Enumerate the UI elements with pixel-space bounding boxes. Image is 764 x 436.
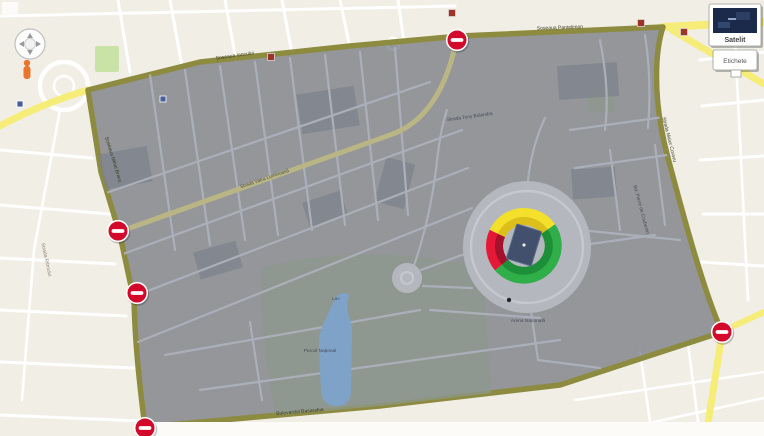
labels-card-pointer bbox=[731, 70, 741, 77]
satellite-thumbnail bbox=[713, 8, 757, 33]
red-poi-icon bbox=[681, 29, 688, 36]
thumbnail-detail bbox=[736, 12, 750, 20]
map-control-fragment bbox=[2, 2, 18, 14]
pegman-icon[interactable] bbox=[24, 60, 31, 79]
red-poi-icon bbox=[268, 54, 275, 61]
red-poi-icon bbox=[638, 20, 645, 27]
blue-poi-icon bbox=[160, 96, 166, 102]
red-poi-icon bbox=[449, 10, 456, 17]
thumbnail-detail bbox=[718, 22, 730, 28]
tile-edge-band bbox=[152, 422, 764, 436]
thumbnail-detail bbox=[728, 18, 736, 20]
map-svg[interactable]: Șoseaua IanculuiȘoseaua PantelimonȘoseau… bbox=[0, 0, 764, 436]
map-canvas[interactable]: Șoseaua IanculuiȘoseaua PantelimonȘoseau… bbox=[0, 0, 764, 436]
map-type-control[interactable]: Satelit Etichete bbox=[709, 4, 763, 77]
parks-outside bbox=[95, 46, 119, 72]
blue-poi-icon bbox=[17, 101, 23, 107]
stadium-poi-dot bbox=[507, 298, 511, 302]
labels-card[interactable] bbox=[713, 50, 757, 70]
